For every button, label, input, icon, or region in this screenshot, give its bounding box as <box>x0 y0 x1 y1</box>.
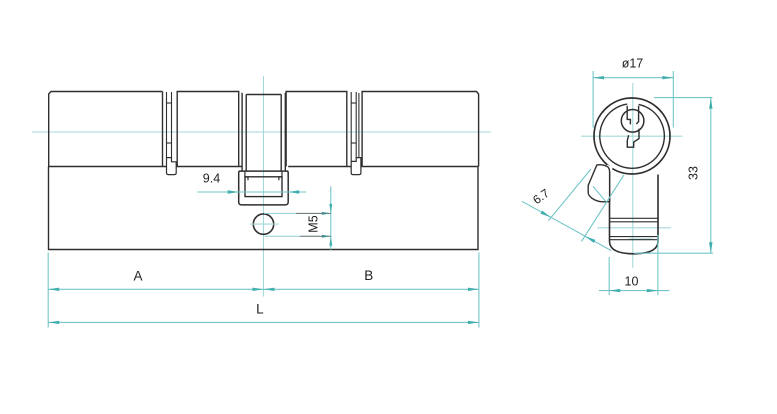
svg-text:9.4: 9.4 <box>203 172 220 186</box>
svg-text:ø17: ø17 <box>622 57 644 71</box>
svg-text:33: 33 <box>687 166 701 180</box>
svg-text:L: L <box>256 302 264 317</box>
svg-text:B: B <box>364 268 373 283</box>
svg-text:M5: M5 <box>307 215 321 232</box>
svg-text:A: A <box>133 269 142 284</box>
svg-text:10: 10 <box>625 274 639 288</box>
